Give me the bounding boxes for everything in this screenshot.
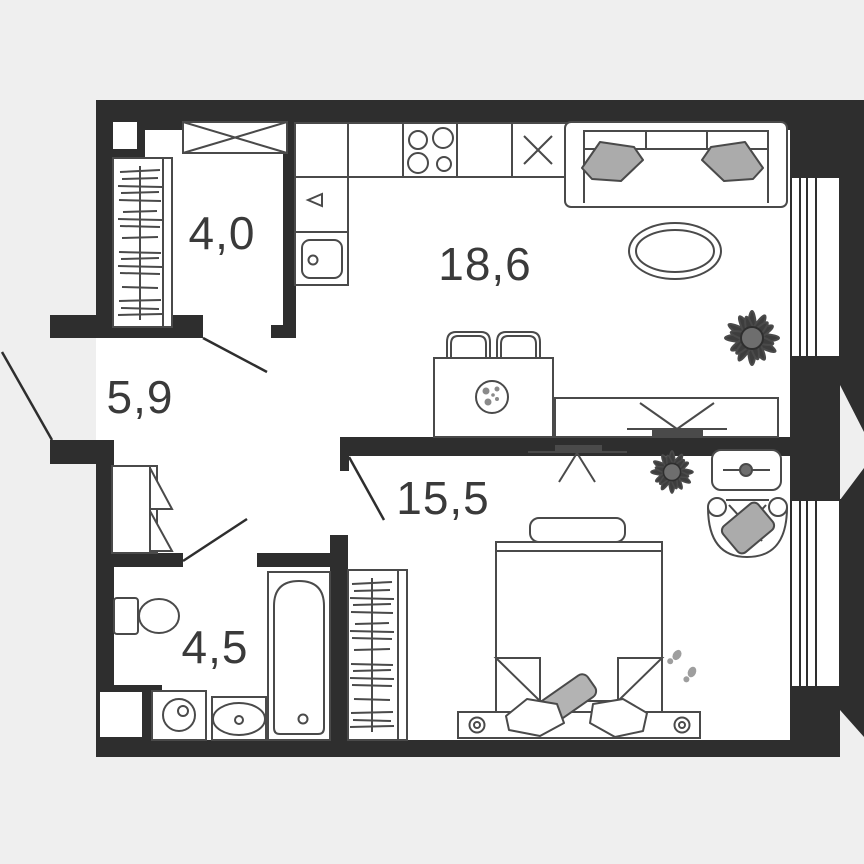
room-label-bedroom: 15,5 (396, 472, 490, 524)
sofa-icon (565, 122, 787, 207)
bathtub-icon (268, 572, 330, 740)
window-living-room (791, 177, 840, 357)
stool-icon (447, 332, 490, 358)
coffee-table-icon (629, 223, 721, 279)
stool-icon (497, 332, 540, 358)
duct-niche-bottom (99, 691, 143, 738)
room-label-hallway: 5,9 (107, 371, 174, 423)
window-bedroom (791, 500, 840, 687)
shelf-unit-icon (183, 122, 287, 153)
plate-icon (476, 381, 508, 413)
clothes-rail-icon (113, 158, 172, 327)
bench-icon (530, 518, 625, 542)
washing-machine-icon (152, 691, 206, 740)
duct-niche-top (112, 121, 138, 150)
room-label-kitchen-living: 18,6 (438, 238, 532, 290)
floor-plan-svg: 4,0 5,9 18,6 15,5 4,5 (0, 0, 864, 864)
room-label-bathroom: 4,5 (182, 621, 249, 673)
ac-unit-icon (712, 450, 781, 490)
kitchen-sink-icon (302, 240, 342, 278)
headboard-icon (458, 712, 700, 738)
floor-plan-image: 4,0 5,9 18,6 15,5 4,5 (0, 0, 864, 864)
wardrobe-icon (348, 570, 407, 740)
wash-basin-icon (212, 697, 266, 740)
room-label-dressing: 4,0 (189, 207, 256, 259)
toilet-icon (114, 598, 179, 634)
